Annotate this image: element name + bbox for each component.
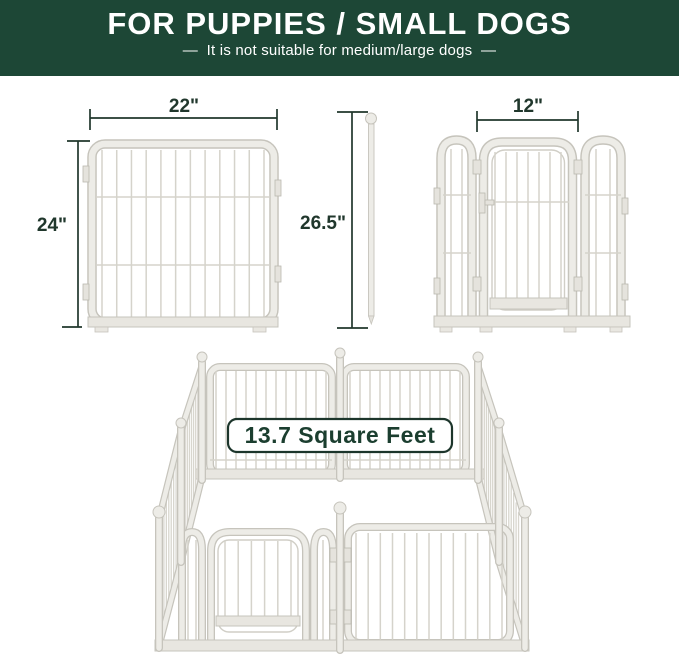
side-section-bars <box>596 149 610 316</box>
panel-vertical-bars <box>102 150 264 317</box>
header-banner: FOR PUPPIES / SMALL DOGS — It is not sui… <box>0 0 679 76</box>
banner-subtitle: — It is not suitable for medium/large do… <box>0 42 679 59</box>
door-side-section-right <box>585 140 621 322</box>
banner-title: FOR PUPPIES / SMALL DOGS <box>0 7 679 41</box>
door-side-section-left <box>441 140 472 322</box>
panel-base-rail <box>88 317 278 327</box>
panel-frame <box>92 144 274 322</box>
door-panel-base-rail <box>434 316 630 327</box>
door-side-section-right <box>585 140 621 322</box>
door-bottom-rail <box>490 298 567 309</box>
figure-support-rod: 26.5" <box>300 112 377 328</box>
product-infographic: FOR PUPPIES / SMALL DOGS — It is not sui… <box>0 0 679 657</box>
side-section-bars <box>451 149 462 316</box>
front-door-rail <box>216 616 300 626</box>
dimension-height-24: 24" <box>37 141 90 327</box>
height-label: 24" <box>37 215 67 236</box>
figure-door-panel: 12" <box>434 96 630 332</box>
badge-label: 13.7 Square Feet <box>245 422 436 448</box>
dimension-height-26-5: 26.5" <box>300 112 368 328</box>
area-badge: 13.7 Square Feet <box>228 419 452 452</box>
figure-single-panel: 22" 24" <box>37 96 281 332</box>
figure-assembled-pen: 13.7 Square Feet <box>153 348 531 651</box>
width-label: 22" <box>169 96 199 117</box>
support-rod <box>366 113 377 324</box>
door-bars <box>495 152 561 298</box>
dimension-width-12: 12" <box>477 96 578 132</box>
door-width-label: 12" <box>513 96 543 117</box>
diagram-artwork: 22" 24" 26.5" <box>0 76 679 657</box>
rod-height-label: 26.5" <box>300 213 346 234</box>
dimension-width-22: 22" <box>90 96 277 130</box>
